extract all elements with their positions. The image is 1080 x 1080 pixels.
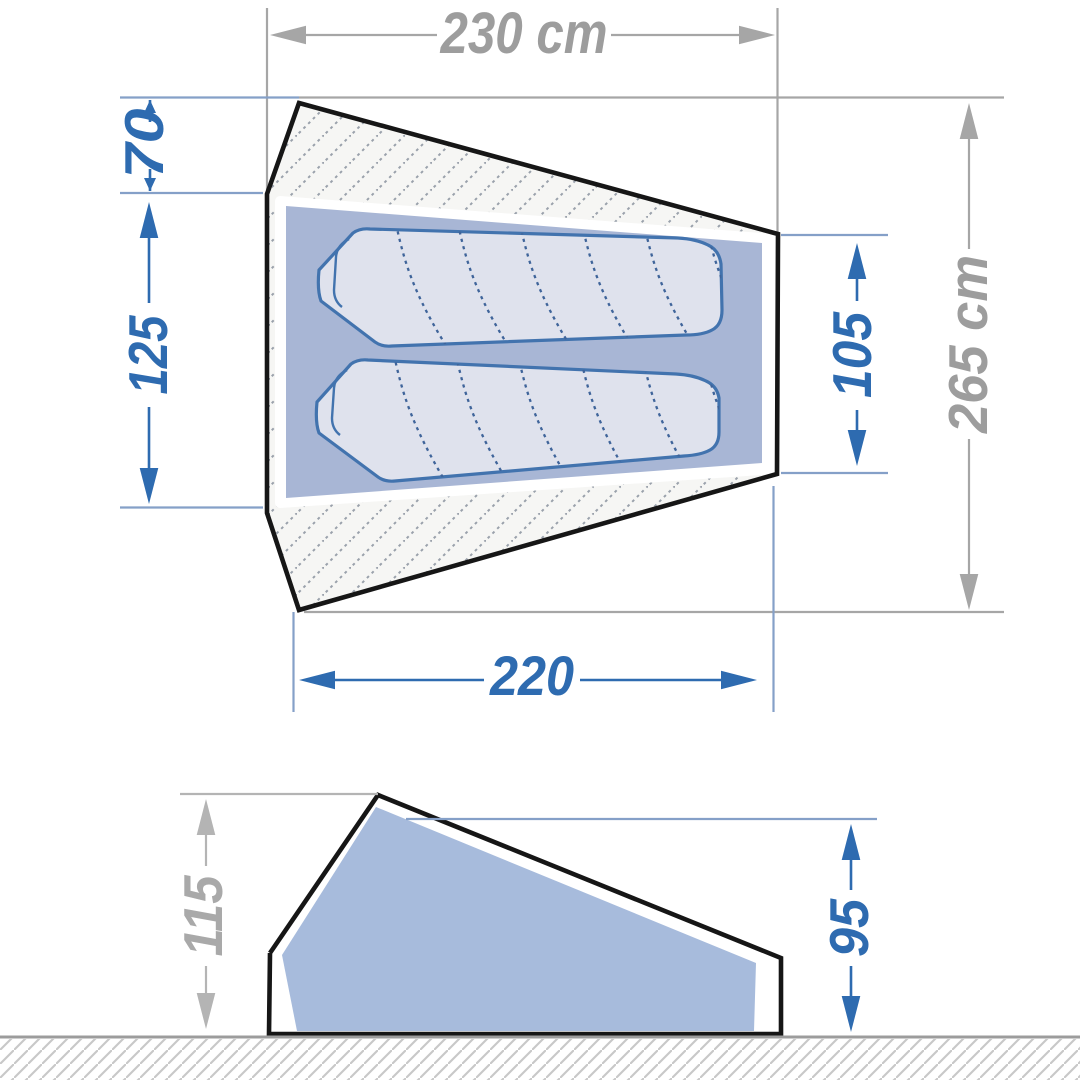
svg-text:70: 70 <box>113 108 175 178</box>
svg-text:115: 115 <box>172 874 234 956</box>
svg-text:105: 105 <box>821 311 883 398</box>
svg-text:265 cm: 265 cm <box>937 255 999 434</box>
svg-text:95: 95 <box>818 898 880 957</box>
svg-text:230 cm: 230 cm <box>440 1 608 66</box>
svg-text:125: 125 <box>117 314 179 394</box>
svg-text:220: 220 <box>489 644 574 707</box>
